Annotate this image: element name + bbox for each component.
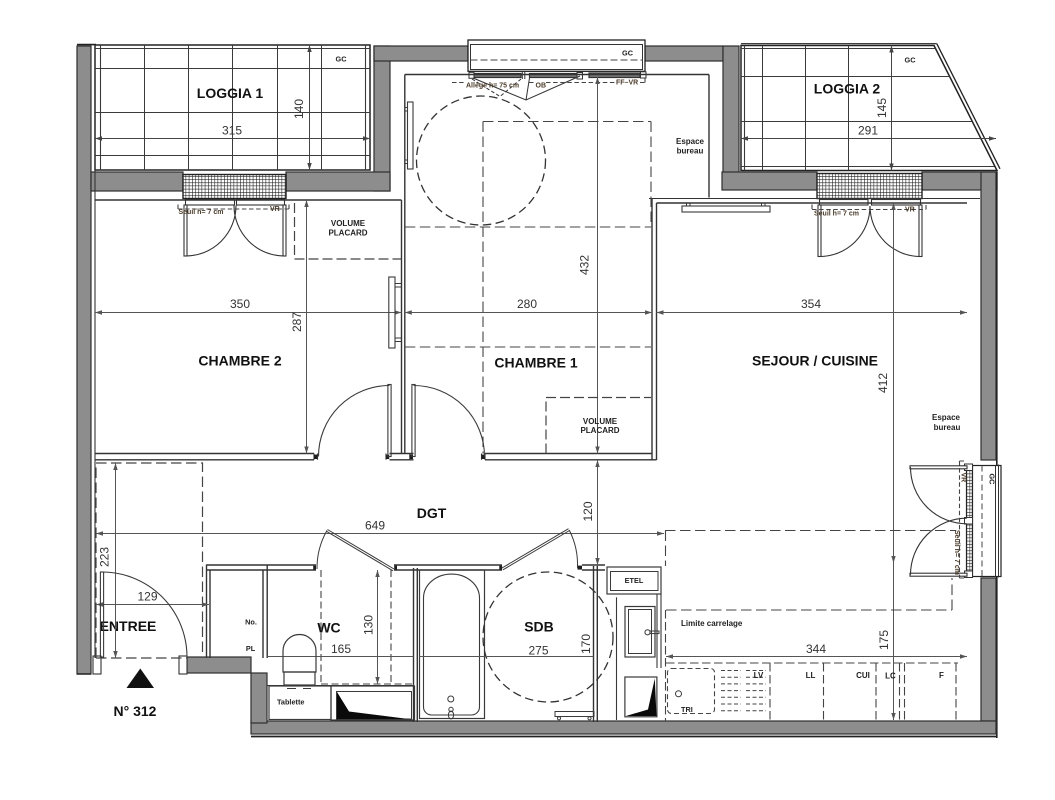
svg-text:170: 170 bbox=[579, 634, 593, 654]
svg-text:VR: VR bbox=[270, 206, 280, 213]
svg-text:Espace: Espace bbox=[676, 137, 705, 146]
svg-text:432: 432 bbox=[578, 255, 592, 275]
svg-text:SEJOUR / CUISINE: SEJOUR / CUISINE bbox=[752, 353, 878, 369]
svg-text:F: F bbox=[939, 671, 944, 680]
svg-text:275: 275 bbox=[528, 644, 548, 658]
svg-text:VOLUME: VOLUME bbox=[331, 219, 366, 228]
svg-text:VOLUME: VOLUME bbox=[583, 417, 618, 426]
svg-text:649: 649 bbox=[365, 519, 385, 533]
svg-text:291: 291 bbox=[858, 124, 878, 138]
svg-text:120: 120 bbox=[581, 501, 595, 521]
svg-text:Espace: Espace bbox=[932, 413, 961, 422]
svg-text:SDB: SDB bbox=[524, 619, 554, 635]
svg-text:412: 412 bbox=[876, 373, 890, 393]
svg-text:GC: GC bbox=[622, 49, 634, 58]
svg-text:Allège h= 75 cm: Allège h= 75 cm bbox=[466, 82, 519, 89]
svg-text:VR: VR bbox=[960, 473, 967, 483]
svg-text:FF–VR: FF–VR bbox=[616, 80, 638, 87]
svg-text:145: 145 bbox=[875, 98, 889, 118]
svg-text:GC: GC bbox=[988, 474, 997, 486]
svg-text:GC: GC bbox=[905, 56, 917, 65]
svg-text:Tablette: Tablette bbox=[277, 698, 304, 707]
svg-text:140: 140 bbox=[292, 99, 306, 119]
svg-text:350: 350 bbox=[230, 297, 250, 311]
svg-text:344: 344 bbox=[806, 642, 826, 656]
svg-text:bureau: bureau bbox=[677, 147, 704, 156]
svg-text:CHAMBRE 1: CHAMBRE 1 bbox=[494, 355, 577, 371]
svg-text:287: 287 bbox=[290, 312, 304, 332]
svg-text:TRI: TRI bbox=[681, 705, 693, 714]
svg-text:PLACARD: PLACARD bbox=[328, 229, 367, 238]
svg-text:223: 223 bbox=[98, 547, 112, 567]
svg-text:129: 129 bbox=[137, 590, 157, 604]
svg-text:CHAMBRE 2: CHAMBRE 2 bbox=[198, 353, 281, 369]
svg-text:No.: No. bbox=[245, 618, 257, 627]
svg-text:PL: PL bbox=[246, 644, 256, 653]
svg-text:LOGGIA 1: LOGGIA 1 bbox=[197, 85, 264, 101]
svg-text:130: 130 bbox=[362, 615, 376, 635]
svg-text:Seuil h= 7 cm: Seuil h= 7 cm bbox=[814, 211, 859, 218]
svg-text:165: 165 bbox=[331, 642, 351, 656]
svg-text:Seuil h= 7 cm: Seuil h= 7 cm bbox=[953, 530, 960, 575]
svg-text:LL: LL bbox=[806, 671, 816, 680]
svg-text:N° 312: N° 312 bbox=[114, 703, 157, 719]
svg-text:ENTREE: ENTREE bbox=[100, 618, 157, 634]
svg-text:LOGGIA 2: LOGGIA 2 bbox=[814, 81, 881, 97]
svg-text:LC: LC bbox=[885, 672, 896, 681]
svg-text:Limite carrelage: Limite carrelage bbox=[681, 619, 743, 628]
svg-text:354: 354 bbox=[801, 297, 821, 311]
svg-text:CUI: CUI bbox=[856, 671, 870, 680]
svg-text:315: 315 bbox=[222, 124, 242, 138]
svg-text:ETEL: ETEL bbox=[625, 576, 644, 585]
svg-text:LV: LV bbox=[754, 671, 764, 680]
svg-text:280: 280 bbox=[517, 297, 537, 311]
svg-text:VR: VR bbox=[905, 207, 915, 214]
svg-text:175: 175 bbox=[877, 630, 891, 650]
svg-text:GC: GC bbox=[336, 55, 348, 64]
svg-text:PLACARD: PLACARD bbox=[580, 426, 619, 435]
svg-text:DGT: DGT bbox=[417, 505, 447, 521]
svg-text:OB: OB bbox=[536, 82, 547, 89]
svg-text:bureau: bureau bbox=[934, 423, 961, 432]
svg-text:Seuil h= 7 cm: Seuil h= 7 cm bbox=[179, 209, 224, 216]
